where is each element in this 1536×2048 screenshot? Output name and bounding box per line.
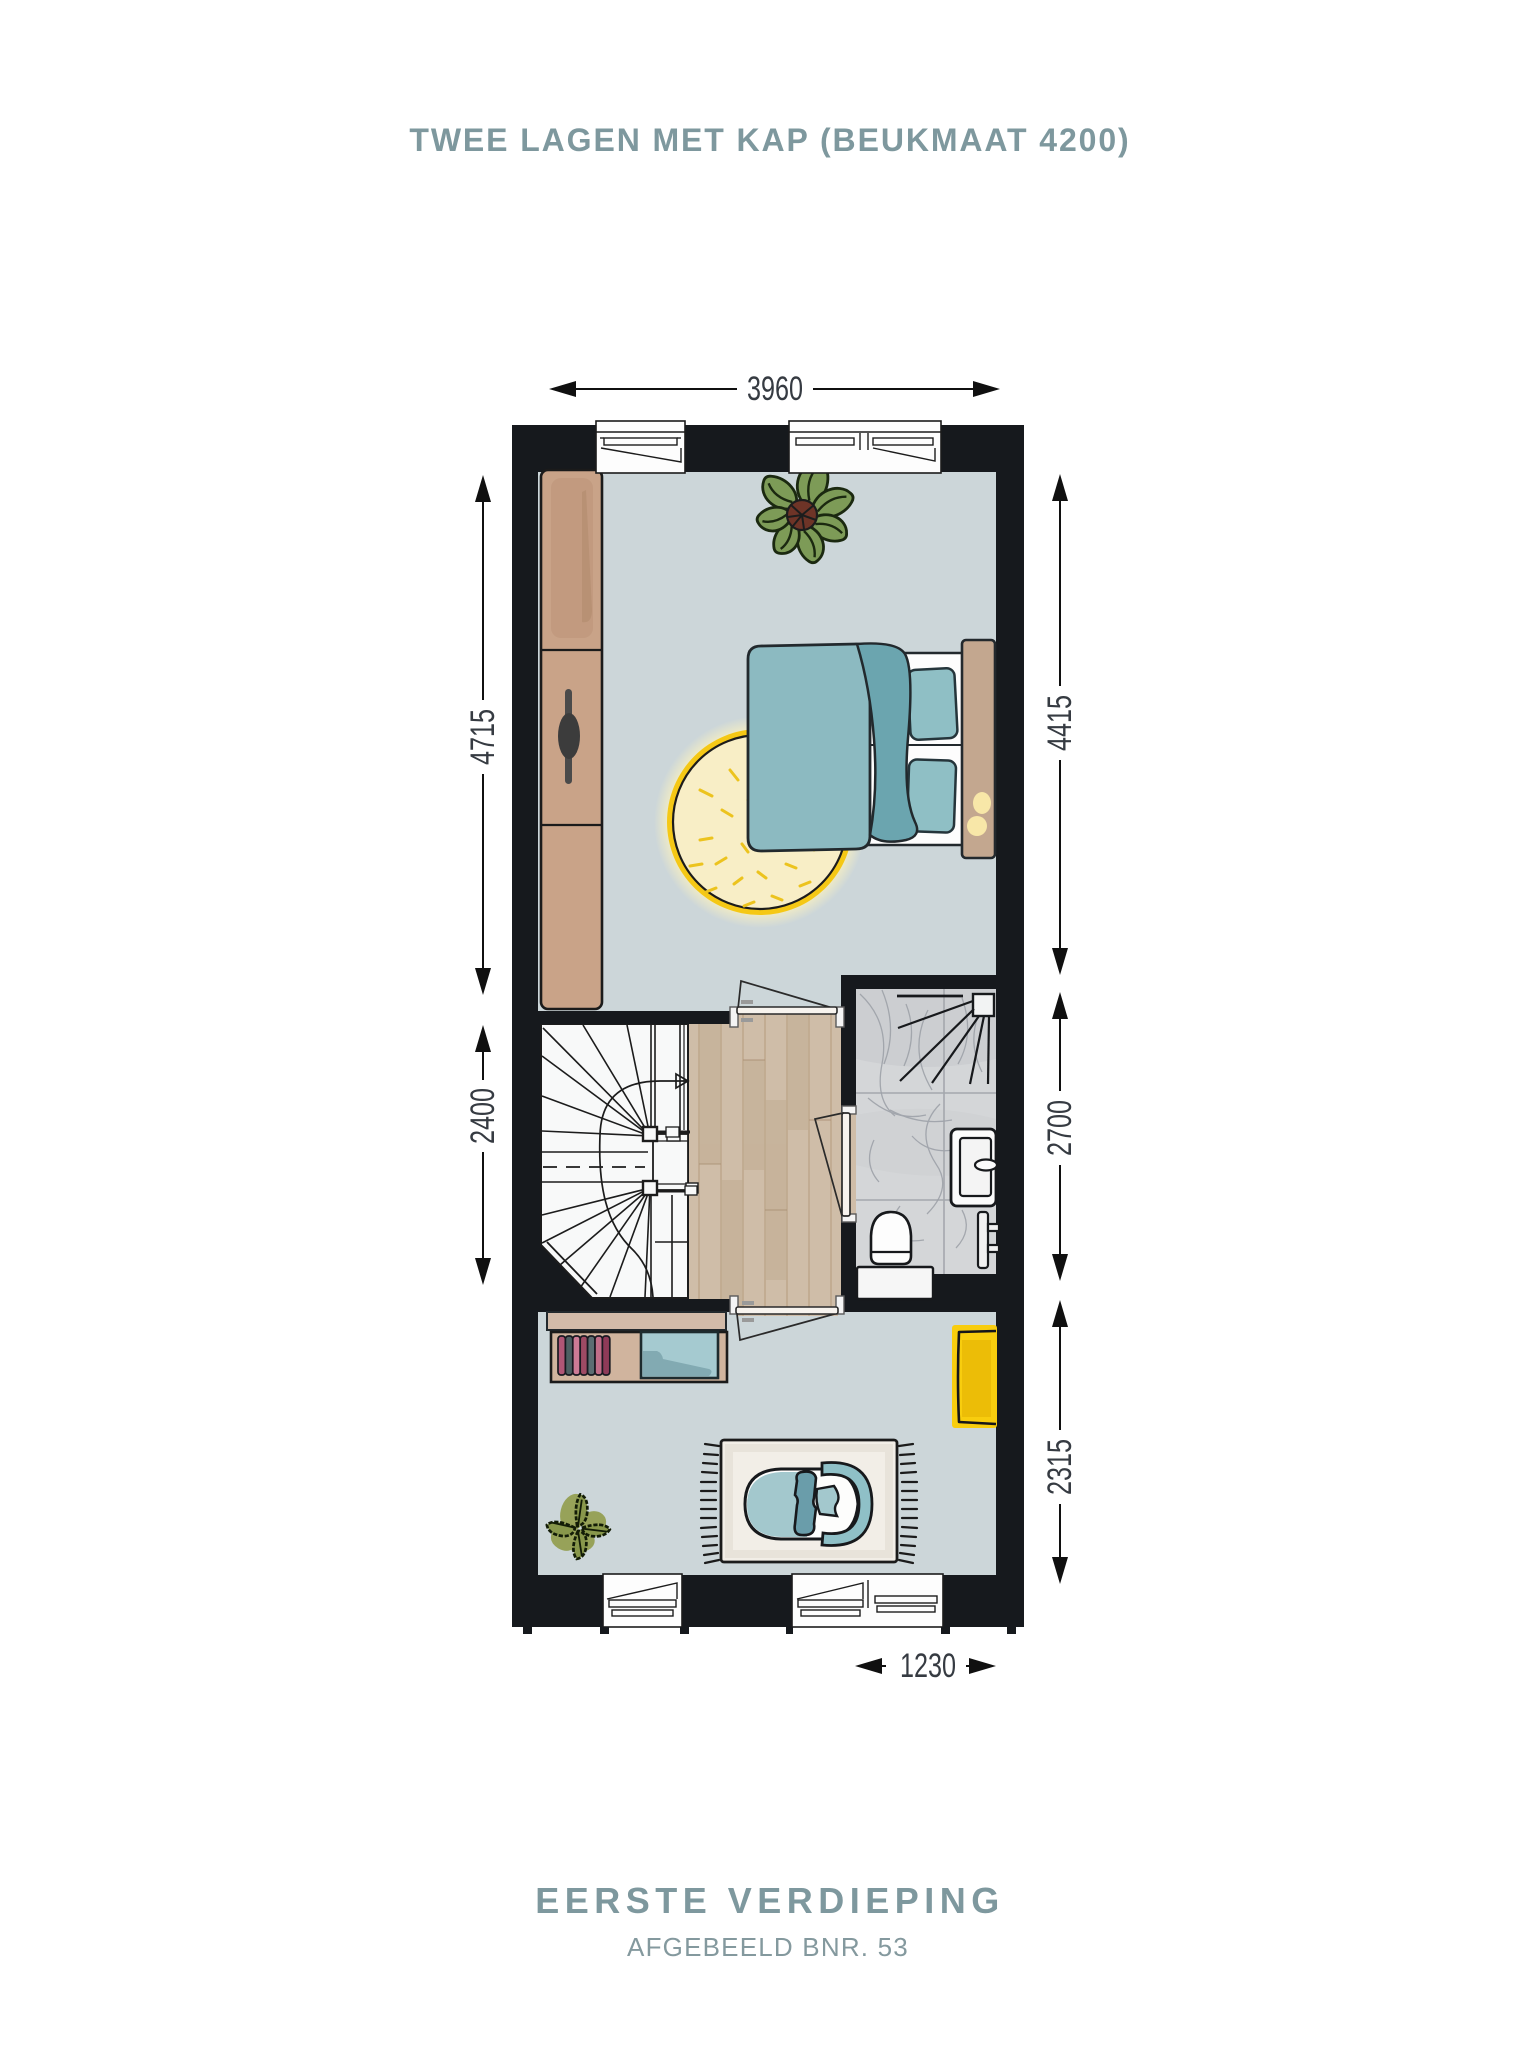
svg-text:EERSTE VERDIEPING: EERSTE VERDIEPING xyxy=(535,1880,1005,1921)
svg-text:2315: 2315 xyxy=(1041,1439,1079,1495)
svg-text:AFGEBEELD BNR. 53: AFGEBEELD BNR. 53 xyxy=(627,1932,909,1962)
svg-text:2400: 2400 xyxy=(464,1088,502,1144)
svg-text:TWEE LAGEN MET KAP (BEUKMAAT 4: TWEE LAGEN MET KAP (BEUKMAAT 4200) xyxy=(409,122,1130,158)
svg-text:4715: 4715 xyxy=(464,709,502,765)
svg-text:3960: 3960 xyxy=(747,370,803,408)
svg-text:4415: 4415 xyxy=(1041,695,1079,751)
svg-text:2700: 2700 xyxy=(1041,1100,1079,1156)
svg-text:1230: 1230 xyxy=(900,1647,956,1685)
